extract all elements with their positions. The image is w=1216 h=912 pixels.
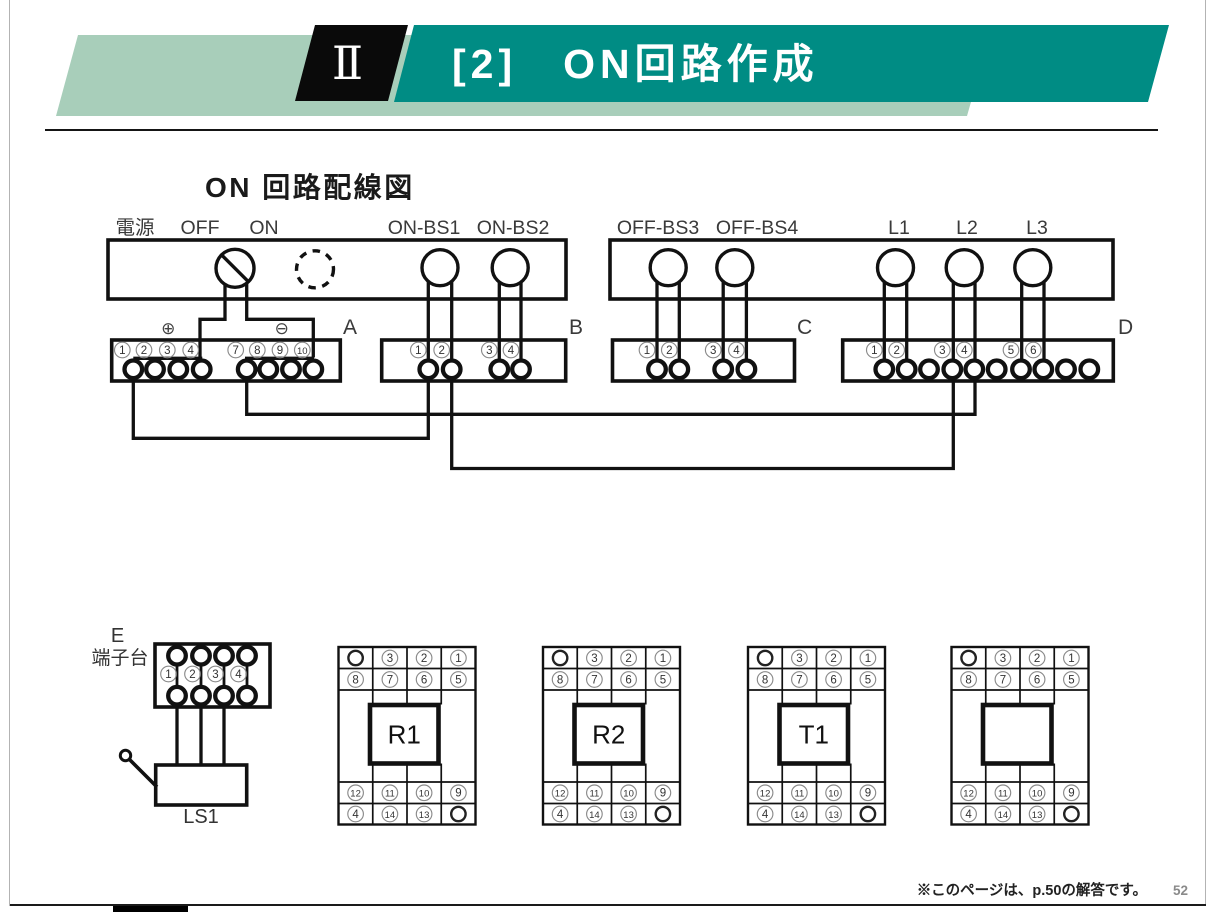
- limit-switch-ls1-box: [156, 765, 247, 805]
- terminal-screw: [1035, 361, 1053, 379]
- block-e-caption: 端子台: [91, 647, 148, 669]
- terminal-screw: [920, 361, 938, 379]
- terminal-number: 4: [508, 345, 515, 357]
- terminal-screw: [146, 361, 164, 379]
- relay-socket-R2: R23218765121110941413: [543, 647, 680, 825]
- terminal-number: 1: [871, 345, 877, 357]
- device-label-7: OFF-BS4: [716, 217, 798, 239]
- terminal-number: 1: [644, 345, 650, 357]
- device-label-row: 電源OFFONON-BS1ON-BS2OFF-BS3OFF-BS4L1L2L3: [115, 217, 1047, 239]
- terminal-number: 14: [589, 810, 600, 821]
- terminal-number: 7: [232, 345, 238, 357]
- terminal-number: 7: [796, 674, 802, 686]
- ls1-label: LS1: [183, 806, 219, 828]
- page-edge-left: [9, 0, 10, 906]
- terminal-number: 1: [865, 653, 871, 665]
- wire-b2-to-d3: [452, 371, 954, 469]
- terminal-number: 3: [939, 345, 945, 357]
- terminal-number: 2: [1034, 653, 1040, 665]
- terminal-number: 4: [352, 809, 359, 821]
- relay-label: R2: [592, 720, 625, 750]
- terminal-screw: [238, 647, 256, 665]
- terminal-number: 6: [830, 674, 836, 686]
- power-switch-off-symbol: [216, 249, 254, 287]
- terminal-number: 10: [828, 789, 839, 800]
- terminal-number: 3: [387, 653, 393, 665]
- relay-label: R1: [388, 720, 421, 750]
- terminal-number: 9: [865, 788, 871, 800]
- device-label-3: ON: [249, 217, 278, 239]
- terminal-number: 4: [965, 809, 972, 821]
- socket-mount-hole: [348, 651, 362, 665]
- terminal-number: 9: [455, 788, 461, 800]
- terminal-number: 1: [1068, 653, 1074, 665]
- button-on-bs2: [492, 250, 528, 286]
- terminal-number: 3: [1000, 653, 1006, 665]
- button-on-bs1: [422, 250, 458, 286]
- terminal-number: 1: [660, 653, 666, 665]
- terminal-screw: [420, 361, 438, 379]
- terminal-number: 12: [963, 789, 974, 800]
- terminal-number: 13: [828, 810, 839, 821]
- terminal-number: 12: [760, 789, 771, 800]
- terminal-number: 8: [762, 674, 768, 686]
- terminal-number: 10: [419, 789, 430, 800]
- socket-mount-hole: [451, 807, 465, 821]
- terminal-number: 1: [165, 669, 171, 681]
- device-label-5: ON-BS2: [477, 217, 550, 239]
- terminal-number: 10: [1032, 789, 1043, 800]
- terminal-screw: [443, 361, 461, 379]
- device-label-2: OFF: [181, 217, 220, 239]
- terminal-number: 5: [1008, 345, 1014, 357]
- terminal-number: 6: [1030, 345, 1036, 357]
- block-b-label: B: [569, 316, 583, 339]
- device-label-6: OFF-BS3: [617, 217, 699, 239]
- terminal-number: 13: [623, 810, 634, 821]
- textbook-page: Ⅱ [2] ON回路作成 ON 回路配線図 電源OFFONON-BS1ON-BS…: [0, 0, 1216, 912]
- terminal-screw: [168, 647, 186, 665]
- terminal-number: 2: [893, 345, 899, 357]
- terminal-number: 2: [830, 653, 836, 665]
- terminal-number: 4: [557, 809, 564, 821]
- terminal-number: 11: [998, 789, 1008, 800]
- terminal-number: 14: [794, 810, 805, 821]
- button-off-bs4: [717, 250, 753, 286]
- diagram-title: ON 回路配線図: [205, 171, 415, 203]
- terminal-number: 1: [455, 653, 461, 665]
- terminal-number: 6: [625, 674, 631, 686]
- relay-unit-outline: [983, 705, 1052, 764]
- terminal-number: 5: [1068, 674, 1074, 686]
- terminal-screw: [898, 361, 916, 379]
- terminal-number: 11: [794, 789, 804, 800]
- terminal-screw: [988, 361, 1006, 379]
- terminal-number: 6: [421, 674, 427, 686]
- terminal-screw: [215, 647, 233, 665]
- button-off-bs3: [650, 250, 686, 286]
- terminal-screw: [192, 687, 210, 705]
- terminal-screw: [168, 687, 186, 705]
- terminal-screw: [491, 361, 509, 379]
- terminal-number: 3: [796, 653, 802, 665]
- terminal-screw: [1012, 361, 1030, 379]
- terminal-number: 9: [1068, 788, 1074, 800]
- device-label-1: 電源: [115, 217, 154, 239]
- lamp-l1: [878, 250, 914, 286]
- terminal-number: 2: [189, 669, 195, 681]
- terminal-number: 14: [385, 810, 396, 821]
- terminal-number: 2: [421, 653, 427, 665]
- terminal-number: 4: [733, 345, 740, 357]
- block-d-label: D: [1118, 316, 1133, 339]
- terminal-number: 5: [660, 674, 666, 686]
- ls1-lever-arm: [129, 759, 157, 787]
- terminal-screw: [966, 361, 984, 379]
- socket-mount-hole: [656, 807, 670, 821]
- terminal-screw: [215, 687, 233, 705]
- terminal-number: 14: [998, 810, 1009, 821]
- terminal-number: 4: [187, 345, 194, 357]
- terminal-number: 2: [625, 653, 631, 665]
- socket-mount-hole: [961, 651, 975, 665]
- terminal-number: 12: [350, 789, 361, 800]
- ls1-lever-roller: [120, 750, 130, 760]
- page-corner-tab: [113, 906, 188, 912]
- terminal-number: 7: [591, 674, 597, 686]
- terminal-screw: [260, 361, 278, 379]
- terminal-screw: [282, 361, 300, 379]
- footer-note: ※このページは、p.50の解答です。: [917, 879, 1147, 900]
- terminal-number: 3: [591, 653, 597, 665]
- terminal-number: 11: [589, 789, 599, 800]
- terminal-screw: [512, 361, 530, 379]
- terminal-number: 9: [660, 788, 666, 800]
- socket-mount-hole: [553, 651, 567, 665]
- terminal-number: 8: [352, 674, 358, 686]
- terminal-number: 3: [212, 669, 218, 681]
- terminal-screw: [125, 361, 143, 379]
- wire-power-to-plus-bus: [200, 284, 225, 358]
- terminal-number: 4: [762, 809, 769, 821]
- terminal-number: 5: [865, 674, 871, 686]
- terminal-number: 1: [415, 345, 421, 357]
- lamp-l2: [946, 250, 982, 286]
- terminal-screw: [671, 361, 689, 379]
- terminal-screw: [192, 647, 210, 665]
- terminal-number: 1: [119, 345, 125, 357]
- terminal-screw: [305, 361, 323, 379]
- terminal-number: 9: [277, 345, 283, 357]
- power-switch-on-position-dashed: [297, 251, 334, 288]
- page-edge-bottom: [10, 904, 1206, 906]
- block-c-label: C: [797, 316, 812, 339]
- terminal-number: 3: [164, 345, 170, 357]
- terminal-screw: [944, 361, 962, 379]
- block-e-label: E: [111, 625, 124, 647]
- socket-mount-hole: [758, 651, 772, 665]
- socket-mount-hole: [861, 807, 875, 821]
- relay-socket-T1: T13218765121110941413: [748, 647, 885, 825]
- terminal-number: 2: [438, 345, 444, 357]
- relay-socket-empty: 3218765121110941413: [952, 647, 1089, 825]
- terminal-screw: [193, 361, 211, 379]
- terminal-screw: [1081, 361, 1099, 379]
- terminal-number: 2: [141, 345, 147, 357]
- footer: ※このページは、p.50の解答です。 52: [0, 879, 1188, 900]
- terminal-screw: [170, 361, 188, 379]
- terminal-number: 8: [965, 674, 971, 686]
- device-label-10: L3: [1026, 217, 1048, 239]
- terminal-screw: [714, 361, 732, 379]
- terminal-screw: [738, 361, 756, 379]
- plus-polarity-mark: ⊕: [161, 319, 175, 338]
- page-number: 52: [1173, 883, 1188, 898]
- terminal-number: 2: [666, 345, 672, 357]
- terminal-number: 4: [235, 669, 242, 681]
- block-a-label: A: [343, 316, 357, 339]
- terminal-number: 6: [1034, 674, 1040, 686]
- terminal-number: 10: [297, 346, 308, 357]
- page-edge-right: [1205, 0, 1206, 906]
- terminal-block-b-box: [382, 340, 566, 381]
- terminal-screw: [238, 361, 256, 379]
- terminal-screw: [238, 687, 256, 705]
- terminal-number: 8: [254, 345, 260, 357]
- terminal-screw: [1057, 361, 1075, 379]
- lamp-l3: [1015, 250, 1051, 286]
- device-label-9: L2: [956, 217, 978, 239]
- socket-mount-hole: [1064, 807, 1078, 821]
- terminal-number: 13: [419, 810, 430, 821]
- terminal-screw: [648, 361, 666, 379]
- device-label-4: ON-BS1: [388, 217, 461, 239]
- terminal-number: 7: [1000, 674, 1006, 686]
- terminal-number: 12: [555, 789, 566, 800]
- minus-polarity-mark: ⊖: [275, 319, 289, 338]
- terminal-number: 5: [455, 674, 461, 686]
- terminal-number: 10: [623, 789, 634, 800]
- terminal-number: 13: [1032, 810, 1043, 821]
- terminal-number: 8: [557, 674, 563, 686]
- terminal-number: 4: [961, 345, 968, 357]
- device-label-8: L1: [888, 217, 910, 239]
- relay-label: T1: [799, 720, 829, 750]
- relay-socket-R1: R13218765121110941413: [339, 647, 476, 825]
- terminal-number: 3: [710, 345, 716, 357]
- terminal-number: 3: [486, 345, 492, 357]
- terminal-number: 7: [387, 674, 393, 686]
- wiring-diagram-svg: ON 回路配線図 電源OFFONON-BS1ON-BS2OFF-BS3OFF-B…: [0, 0, 1216, 912]
- terminal-screw: [876, 361, 894, 379]
- terminal-number: 11: [385, 789, 395, 800]
